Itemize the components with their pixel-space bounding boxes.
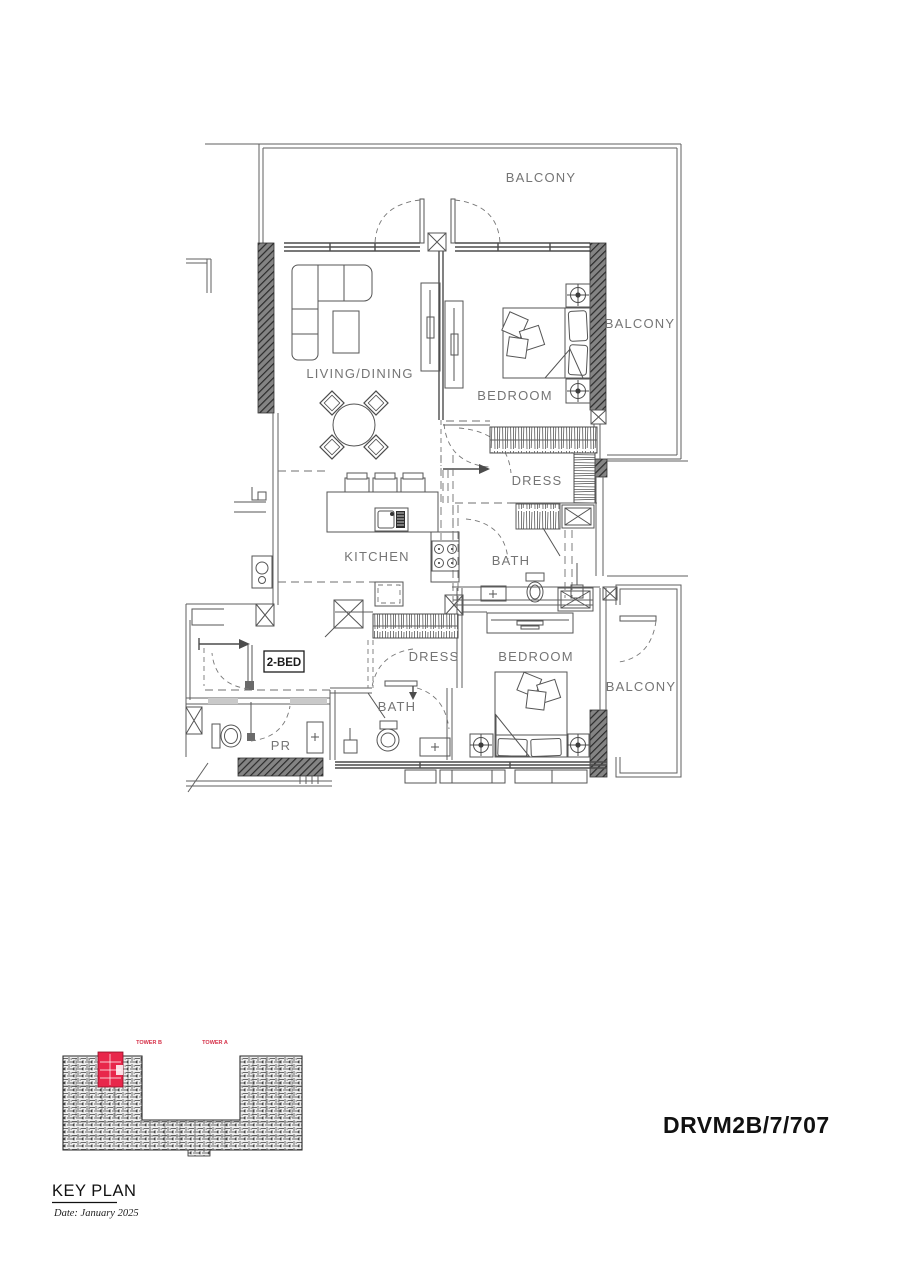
dress-bottom (335, 612, 458, 638)
balcony-bottom-door (619, 616, 656, 662)
entry-door (199, 638, 254, 690)
room-label-dress-bottom: DRESS (409, 649, 460, 664)
window-band-top (284, 243, 590, 251)
room-label-bath-top: BATH (492, 553, 531, 568)
vanity-bottom (420, 738, 450, 756)
bedroom-bottom-furniture (470, 613, 589, 757)
toilet-bottom (377, 721, 399, 751)
unit-code-title: DRVM2B/7/707 (663, 1112, 830, 1138)
unit-type-label: 2-BED (267, 657, 302, 669)
room-label-balcony-top: BALCONY (506, 170, 577, 185)
room-label-dress-top: DRESS (512, 473, 563, 488)
room-label-balcony-right: BALCONY (605, 316, 676, 331)
tower-a-label: TOWER A (202, 1040, 228, 1046)
shaft-kitchen-corner (256, 604, 274, 626)
floor-plan-canvas: 2-BED (0, 0, 900, 1273)
valve-symbol (571, 563, 583, 598)
living-dining-furniture (292, 265, 388, 459)
room-label-kitchen: KITCHEN (344, 549, 409, 564)
window-box-bedroom-top (591, 410, 606, 424)
pr-door (247, 702, 290, 741)
basin-top (481, 586, 506, 601)
unit-type-box: 2-BED (264, 651, 304, 672)
kitchen-counter (431, 532, 459, 582)
wall-hatched-east (590, 243, 606, 410)
bed-top (502, 308, 590, 378)
entry-arrow-hall (443, 464, 490, 474)
wall-hatched-east-bottom (590, 710, 607, 777)
powder-room (212, 722, 323, 753)
balcony-outline-top-right (205, 144, 688, 576)
key-plan-date: Date: January 2025 (53, 1208, 139, 1219)
key-plan: TOWER B TOWER A KEY PLAN Date: January 2… (52, 1040, 302, 1219)
side-table (333, 311, 359, 353)
stove (432, 541, 459, 571)
room-label-bath-bottom: BATH (378, 699, 417, 714)
key-plan-highlighted-unit (98, 1052, 123, 1087)
bedroom-top-furniture (421, 283, 590, 403)
wall-hatched-south (238, 758, 323, 776)
shower-top (562, 505, 594, 528)
kitchen-furniture (192, 473, 459, 625)
toilet-pr (212, 724, 241, 748)
room-label-living-dining: LIVING/DINING (306, 366, 413, 381)
room-label-pr: PR (271, 738, 291, 753)
room-label-bedroom-top: BEDROOM (477, 388, 553, 403)
shaft-corridor-west (186, 707, 202, 734)
shaft-hall (325, 600, 363, 637)
shower-mixer (344, 728, 357, 753)
dresser (487, 613, 573, 633)
under-counter-appliance (375, 582, 403, 606)
wall-hatched-west (258, 243, 274, 413)
key-plan-title: KEY PLAN (52, 1182, 136, 1200)
bed-bottom (495, 672, 567, 757)
bar-stools (345, 473, 425, 492)
basin-pr (307, 722, 323, 753)
cropped-fixtures-bottom (405, 770, 587, 783)
tower-b-label: TOWER B (136, 1040, 162, 1046)
dress-top (443, 425, 597, 503)
window-box-balcony-bottom (603, 587, 617, 600)
dining-table (320, 391, 388, 459)
room-label-bedroom-bottom: BEDROOM (498, 649, 574, 664)
bath-bench (516, 504, 560, 529)
kitchen-island (327, 492, 438, 532)
sofa (292, 265, 372, 360)
room-label-balcony-bottom: BALCONY (606, 679, 677, 694)
kitchen-sink (375, 508, 408, 531)
floorplan-page: 2-BED (0, 0, 900, 1273)
